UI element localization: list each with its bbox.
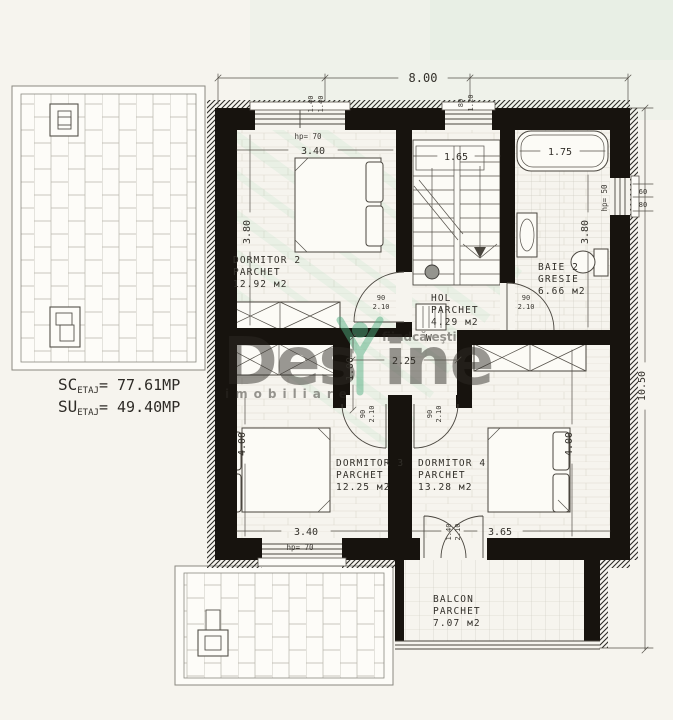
- sc-prefix: SC: [58, 375, 77, 394]
- dormitor2-finish: PARCHET: [233, 267, 281, 278]
- door-balcon-height: 2.10: [454, 524, 462, 541]
- dim-d3-width: 3.40: [294, 527, 318, 538]
- balcon-area: 7.07 м2: [433, 618, 481, 629]
- sc-value: = 77.61MP: [99, 376, 180, 394]
- dormitor4-area: 13.28 м2: [418, 482, 473, 493]
- dim-window1-height: 1.40: [317, 96, 325, 113]
- dormitor4-name: DORMITOR 4: [418, 458, 486, 469]
- chimney-icon: [50, 104, 78, 136]
- sc-subscript: ETAJ: [77, 386, 99, 396]
- dormitor4-finish: PARCHET: [418, 470, 466, 481]
- stair-newel-post: [425, 265, 439, 279]
- bed-dormitor4: [488, 428, 570, 512]
- dim-1-65: 1.65: [444, 152, 468, 163]
- washer-label: W: [426, 333, 433, 344]
- roof-plan-bottom: [175, 566, 393, 685]
- watermark: Des ine fiindcă eşti imobiliare: [223, 320, 492, 401]
- dim-2-25: 2.25: [392, 356, 416, 367]
- hol-area: 4.29 м2: [431, 317, 479, 328]
- dim-window1-width: 1.40: [307, 96, 315, 113]
- dim-d2-window-hp: hp= 70: [294, 132, 322, 141]
- dim-8-00: 8.00: [409, 71, 438, 85]
- door-d3-width: 90: [359, 410, 367, 418]
- dim-baie-window-80: 80: [639, 201, 647, 209]
- dim-d4-height: 4.00: [564, 432, 575, 456]
- room-label-baie2: BAIE 2 GRESIE 6.66 м2: [538, 262, 586, 297]
- baie2-finish: GRESIE: [538, 274, 579, 285]
- baie2-area: 6.66 м2: [538, 286, 586, 297]
- wall-stair-west: [396, 130, 412, 274]
- watermark-tagline: fiindcă eşti: [382, 330, 457, 344]
- dim-d3-window-hp: hp= 70: [286, 543, 314, 552]
- dim-window2-height: 1.20: [467, 95, 475, 112]
- hol-finish: PARCHET: [431, 305, 479, 316]
- dormitor3-finish: PARCHET: [336, 470, 384, 481]
- door-d2-height: 2.10: [373, 303, 390, 311]
- dim-10-50: 10.50: [637, 371, 648, 401]
- door-balcon-width: 1.40: [445, 524, 453, 541]
- wall-d3-d4-divider: [388, 395, 412, 560]
- bed-dormitor2: [295, 158, 383, 252]
- scanned-floor-plan: Des ine fiindcă eşti imobiliare DORMITOR…: [0, 0, 673, 720]
- chimney-icon: [50, 307, 80, 347]
- wall-balcon-west: [395, 560, 404, 641]
- dim-d3-height: 4.00: [237, 432, 248, 456]
- dim-tub-1-75: 1.75: [548, 147, 572, 158]
- wall-baie-west: [500, 130, 515, 285]
- dim-d4-width: 3.65: [488, 527, 512, 538]
- balcon-finish: PARCHET: [433, 606, 481, 617]
- dim-d2-width: 3.40: [301, 146, 325, 157]
- dormitor2-name: DORMITOR 2: [233, 255, 301, 266]
- su-etaj-line: SUETAJ= 49.40MP: [58, 397, 180, 418]
- roof-plan-left: [12, 86, 205, 370]
- window-dormitor2-top: [250, 102, 350, 130]
- dormitor2-area: 12.92 м2: [233, 279, 288, 290]
- door-baie-width: 90: [522, 294, 530, 302]
- su-subscript: ETAJ: [77, 408, 99, 418]
- floor-plan-svg: Des ine fiindcă eşti imobiliare DORMITOR…: [0, 0, 673, 720]
- sink-icon: [517, 213, 537, 257]
- baie2-name: BAIE 2: [538, 262, 579, 273]
- dim-baie-height: 3.80: [580, 220, 591, 244]
- dim-d2-height: 3.80: [242, 220, 253, 244]
- door-d3-height: 2.10: [368, 406, 376, 423]
- wall-balcon-east: [584, 560, 600, 641]
- floor-balcon-tile: [404, 560, 584, 641]
- su-prefix: SU: [58, 397, 77, 416]
- dim-1-00: 1.00: [345, 357, 356, 381]
- watermark-subtitle: imobiliare: [225, 387, 353, 401]
- sc-etaj-line: SCETAJ= 77.61MP: [58, 375, 180, 396]
- dim-baie-window-60: 60: [639, 188, 647, 196]
- dim-baie-window-hp: hp= 50: [600, 184, 609, 212]
- door-baie-height: 2.10: [518, 303, 535, 311]
- hol-name: HOL: [431, 293, 451, 304]
- dormitor3-name: DORMITOR 3: [336, 458, 404, 469]
- dormitor3-area: 12.25 м2: [336, 482, 391, 493]
- door-d4-width: 90: [426, 410, 434, 418]
- room-label-balcon: BALCON PARCHET 7.07 м2: [433, 594, 481, 629]
- su-value: = 49.40MP: [99, 398, 180, 416]
- dim-window2-width: 80: [457, 99, 465, 107]
- balcon-name: BALCON: [433, 594, 474, 605]
- door-d4-height: 2.10: [435, 406, 443, 423]
- door-d2-width: 90: [377, 294, 385, 302]
